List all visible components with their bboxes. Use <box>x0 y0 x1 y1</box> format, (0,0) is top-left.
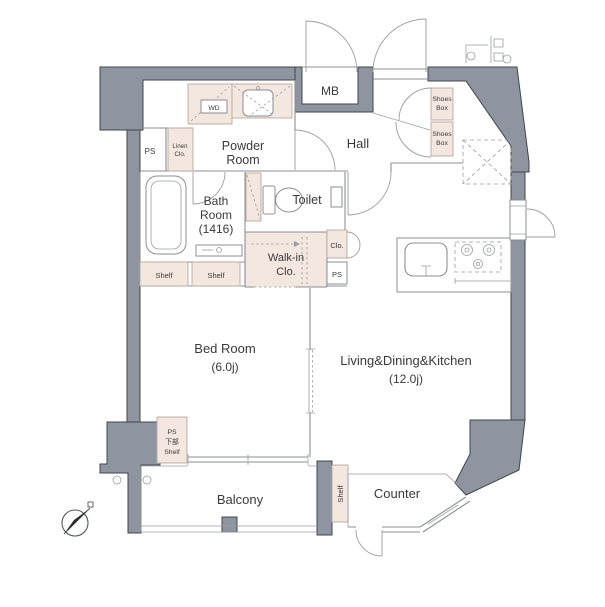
bed-room-size: (6.0j) <box>211 360 238 374</box>
bath-counter <box>196 245 242 256</box>
balcony-partition-block <box>222 517 237 532</box>
kitchen-counter <box>397 238 511 292</box>
ps-top-label: PS <box>145 147 156 156</box>
shoes-box-doors <box>396 88 431 157</box>
hall-label: Hall <box>347 136 370 151</box>
wall-left-band <box>127 130 140 422</box>
wall-corner-bay <box>455 420 525 495</box>
floor-plan: MB Powder Room Hall Shoes Box Shoes Box … <box>0 0 605 607</box>
exterior-walls <box>100 67 529 535</box>
shoes-box-upper-label-1: Shoes <box>432 96 452 103</box>
linen-closet-label-2: Clo. <box>174 151 185 158</box>
bedroom-south <box>157 417 308 465</box>
balcony-post-left <box>113 476 121 484</box>
drain-circle-2 <box>503 55 511 63</box>
bath-room-label-3: (1416) <box>199 222 234 236</box>
room-labels: MB Powder Room Hall Shoes Box Shoes Box … <box>145 84 472 507</box>
balcony-area <box>113 466 317 532</box>
hall-south-wall <box>295 163 463 172</box>
counter-balcony-door <box>356 530 382 556</box>
shoes-box-lower <box>431 122 453 156</box>
bath-room-label-1: Bath <box>204 194 229 208</box>
wall-bottom-left <box>100 422 160 533</box>
toilet-tank <box>263 186 275 214</box>
walk-in-label-2: Clo. <box>276 266 296 278</box>
wall-right-upper <box>511 172 525 202</box>
balcony-post-right <box>143 476 151 484</box>
washer-dryer-label: WD <box>208 105 219 112</box>
shelf-right-label: Shelf <box>207 271 225 280</box>
linen-closet-label-1: Linen <box>172 143 188 150</box>
entrance-door <box>373 19 426 72</box>
ldk-entry-door <box>348 172 391 215</box>
bedroom-window-ticks <box>188 454 308 465</box>
shoes-box-lower-label-1: Shoes <box>432 131 452 138</box>
powder-room-door <box>295 130 335 170</box>
meter-box-door <box>306 21 357 72</box>
ps-lower-shelf-label-3: Shelf <box>164 449 180 456</box>
sliding-door-ticks <box>306 349 315 413</box>
closet-label: Clo. <box>330 241 343 250</box>
walk-in-label-1: Walk-in <box>268 252 304 264</box>
bath-room-label-2: Room <box>200 208 232 222</box>
pipe-box-1 <box>494 39 503 47</box>
toilet-paper-holder <box>331 187 342 207</box>
counter-shelf-label: Shelf <box>336 485 345 503</box>
counter-label: Counter <box>374 486 421 501</box>
shoes-box-upper <box>431 88 453 120</box>
pipe-lines <box>466 36 491 63</box>
toilet-label: Toilet <box>292 193 322 207</box>
compass-icon <box>62 502 93 536</box>
outdoor-pipe-fixtures <box>466 36 511 63</box>
bed-room-label: Bed Room <box>194 341 255 356</box>
angled-window-sash <box>428 505 458 524</box>
wall-right-lower <box>511 240 525 420</box>
service-door-swing <box>526 209 555 237</box>
closet-doors <box>347 232 360 258</box>
pipe-box-2 <box>494 53 503 61</box>
shelf-left-label: Shelf <box>155 271 173 280</box>
bathtub-icon <box>146 176 186 254</box>
shoes-box-lower-label-2: Box <box>436 140 448 147</box>
powder-room-label-1: Powder <box>222 139 264 153</box>
entrance-step-line <box>373 113 430 130</box>
ldk-service-door <box>510 200 555 240</box>
refrigerator-cross <box>463 140 511 184</box>
hall-area <box>295 19 453 215</box>
balcony-label: Balcony <box>217 492 264 507</box>
powder-room-label-2: Room <box>226 153 259 167</box>
shoes-box-upper-label-2: Box <box>436 105 448 112</box>
counter-angled-window <box>420 497 470 532</box>
ps-mid-label: PS <box>332 270 342 279</box>
ldk-label: Living&Dining&Kitchen <box>340 353 472 368</box>
drain-circle-1 <box>467 52 475 60</box>
counter-area <box>332 465 470 556</box>
counter-south-window <box>348 527 420 532</box>
floor-plan-svg: MB Powder Room Hall Shoes Box Shoes Box … <box>0 0 605 607</box>
mb-label: MB <box>321 84 339 98</box>
wall-balcony-divider <box>317 461 332 535</box>
ps-lower-shelf-label-2: 下部 <box>165 437 179 446</box>
ps-lower-shelf-label-1: PS <box>167 429 177 436</box>
entrance-threshold <box>373 69 428 79</box>
ldk-size: (12.0j) <box>389 372 423 386</box>
vanity-basin <box>243 90 273 116</box>
